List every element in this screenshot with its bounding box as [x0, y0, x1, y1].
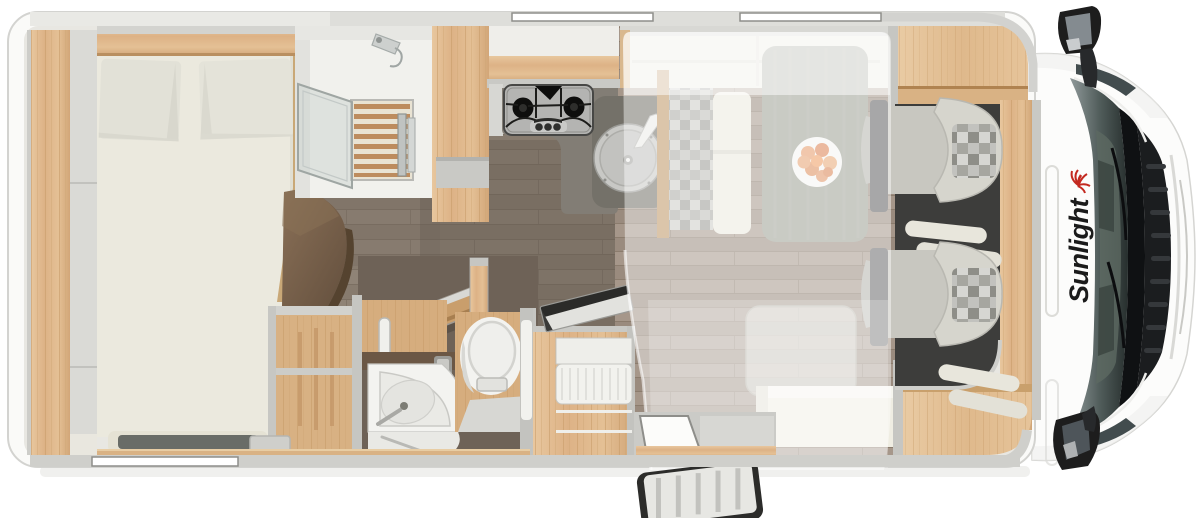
svg-text:Sunlight: Sunlight	[1064, 198, 1094, 303]
